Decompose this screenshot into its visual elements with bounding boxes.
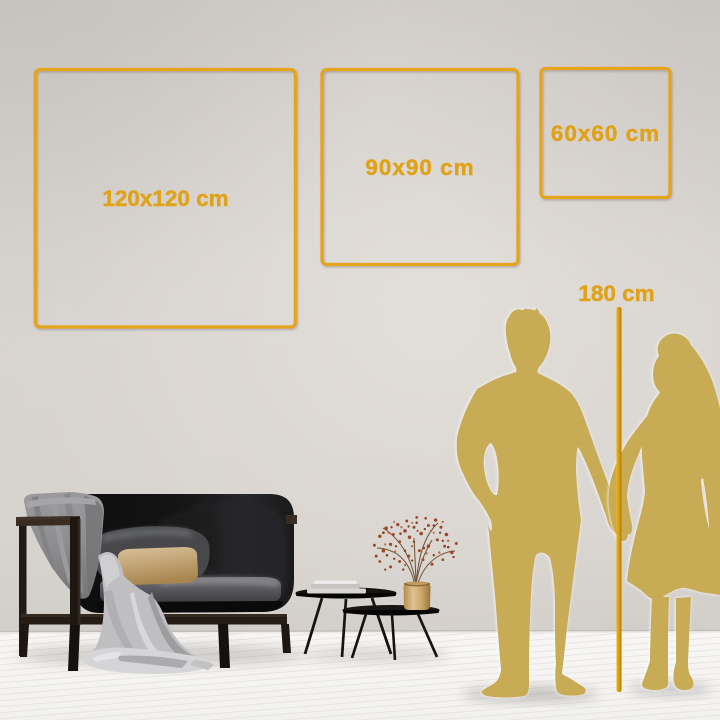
svg-text:120x120 cm: 120x120 cm: [102, 186, 228, 211]
svg-text:90x90 cm: 90x90 cm: [365, 155, 474, 180]
svg-text:60x60 cm: 60x60 cm: [551, 121, 660, 146]
svg-text:180 cm: 180 cm: [578, 281, 654, 306]
